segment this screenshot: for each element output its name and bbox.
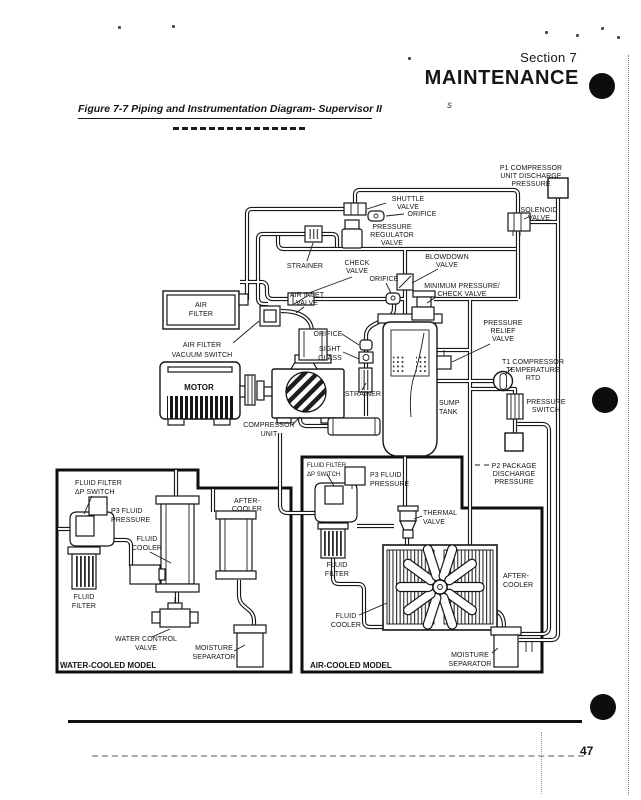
wc-moisture-separator xyxy=(234,625,266,667)
label-sight-glass: GLASS xyxy=(318,355,342,362)
label-min-pressure: MINIMUM PRESSURE/ xyxy=(424,283,500,290)
ac-label-after-cooler: COOLER xyxy=(503,582,533,589)
label-blowdown: BLOWDOWN xyxy=(425,254,469,261)
p2-sensor-symbol xyxy=(505,433,523,451)
wc-label-water-valve: WATER CONTROL xyxy=(115,636,177,643)
label-compressor-unit: UNIT xyxy=(261,431,278,438)
ac-label-fluid-cooler: FLUID xyxy=(336,613,357,620)
label-strainer-2: STRAINER xyxy=(345,391,381,398)
label-t1-rtd: T1 COMPRESSOR xyxy=(502,359,564,366)
wc-label-fluid-filter: FILTER xyxy=(72,603,96,610)
wc-label-water-valve: VALVE xyxy=(135,645,157,652)
label-orifice-2: ORIFICE xyxy=(369,276,398,283)
ac-label-moisture: SEPARATOR xyxy=(449,661,492,668)
wc-label-moisture: SEPARATOR xyxy=(193,654,236,661)
ac-label-fluid-filter: FLUID xyxy=(327,562,348,569)
label-vacuum-switch: VACUUM SWITCH xyxy=(172,352,233,359)
label-solenoid: SOLENOID xyxy=(521,207,558,214)
label-relief-valve: PRESSURE xyxy=(483,320,523,327)
wc-water-control-valve xyxy=(152,597,198,627)
wc-model-title: WATER-COOLED MODEL xyxy=(60,661,156,670)
label-relief-valve: RELIEF xyxy=(490,328,515,335)
label-sump-tank: SUMP xyxy=(439,400,460,407)
label-orifice-1: ORIFICE xyxy=(407,211,436,218)
label-motor: MOTOR xyxy=(184,383,214,392)
air-filter-box xyxy=(163,291,248,329)
pressure-relief-valve-symbol xyxy=(437,350,451,369)
label-min-pressure: CHECK VALVE xyxy=(437,291,486,298)
pressure-switch-symbol xyxy=(507,394,523,419)
ac-fluid-filter-assembly xyxy=(315,467,365,558)
ac-label-p3: PRESSURE xyxy=(370,481,410,488)
ac-label-fluid-filter: FILTER xyxy=(325,571,349,578)
footer-rule xyxy=(68,720,582,723)
label-t1-rtd: RTD xyxy=(526,375,541,382)
strainer-symbol-top xyxy=(305,226,322,242)
orifice-symbol-1 xyxy=(368,211,384,221)
vacuum-switch-symbol xyxy=(260,306,280,326)
ac-label-p3: P3 FLUID xyxy=(370,472,402,479)
component-symbols xyxy=(68,178,568,667)
oil-return-pipe xyxy=(328,418,380,435)
scan-noise-line xyxy=(92,755,584,757)
wc-label-fluid-filter: FLUID xyxy=(74,594,95,601)
sump-tank xyxy=(378,314,442,456)
label-p2: PRESSURE xyxy=(494,479,534,486)
wc-label-after-cooler: AFTER- xyxy=(234,498,260,505)
ac-label-moisture: MOISTURE xyxy=(451,652,489,659)
label-vacuum-switch: AIR FILTER xyxy=(183,342,221,349)
piping-diagram: P1 COMPRESSOR UNIT DISCHARGE PRESSURE SH… xyxy=(0,0,641,800)
wc-label-after-cooler: COOLER xyxy=(232,506,262,513)
label-air-inlet: AIR INLET xyxy=(290,292,325,299)
blowdown-valve-symbol xyxy=(397,274,413,290)
label-check-valve: VALVE xyxy=(346,268,368,275)
ac-thermal-valve xyxy=(398,506,418,538)
motor-symbol xyxy=(160,362,240,425)
ac-label-after-cooler: AFTER- xyxy=(503,573,529,580)
wc-label-moisture: MOISTURE xyxy=(195,645,233,652)
wc-label-dp-switch: FLUID FILTER xyxy=(75,480,122,487)
p1-sensor-symbol xyxy=(548,178,568,198)
label-air-filter: AIR xyxy=(195,302,207,309)
label-orifice-3: ORIFICE xyxy=(313,331,342,338)
label-air-inlet: VALVE xyxy=(296,300,318,307)
wc-label-p3: PRESSURE xyxy=(111,517,151,524)
wc-after-cooler xyxy=(216,511,256,579)
label-sight-glass: SIGHT xyxy=(319,346,342,353)
wc-label-fluid-cooler: FLUID xyxy=(137,536,158,543)
manual-page: Section 7 MAINTENANCE Figure 7-7 Piping … xyxy=(0,0,641,800)
label-check-valve: CHECK xyxy=(344,260,369,267)
ac-model-title: AIR-COOLED MODEL xyxy=(310,661,392,670)
label-blowdown: VALVE xyxy=(436,262,458,269)
coupling-symbol xyxy=(240,375,273,405)
label-strainer-top: STRAINER xyxy=(287,263,323,270)
min-pressure-check-valve-symbol xyxy=(412,291,435,320)
ac-label-dp-switch: ΔP SWITCH xyxy=(307,472,340,478)
pressure-regulator-symbol xyxy=(342,220,362,248)
label-regulator: VALVE xyxy=(381,240,403,247)
label-air-filter: FILTER xyxy=(189,311,213,318)
fan-hub xyxy=(433,580,447,594)
label-solenoid: VALVE xyxy=(528,215,550,222)
label-p2: P2 PACKAGE xyxy=(492,463,537,470)
wc-label-p3: P3 FLUID xyxy=(111,508,143,515)
orifice-symbol-2 xyxy=(386,293,400,304)
label-regulator: PRESSURE xyxy=(372,224,412,231)
ac-label-fluid-cooler: COOLER xyxy=(331,622,361,629)
label-shuttle-valve: SHUTTLE xyxy=(392,196,425,203)
t1-rtd-symbol xyxy=(494,372,513,391)
wc-label-dp-switch: ΔP SWITCH xyxy=(75,489,115,496)
ac-label-thermal: VALVE xyxy=(423,519,445,526)
ac-fan-cooler xyxy=(383,544,497,630)
ac-label-dp-switch: FLUID FILTER xyxy=(307,463,347,469)
ac-label-thermal: THERMAL xyxy=(423,510,457,517)
compressor-symbol xyxy=(272,369,344,423)
label-pressure-switch: PRESSURE xyxy=(526,399,566,406)
label-sump-tank: TANK xyxy=(439,409,458,416)
label-compressor-unit: COMPRESSOR xyxy=(243,422,295,429)
label-regulator: REGULATOR xyxy=(370,232,414,239)
label-p2: DISCHARGE xyxy=(493,471,536,478)
label-p1: UNIT DISCHARGE xyxy=(500,173,561,180)
label-p1: PRESSURE xyxy=(511,181,551,188)
label-p1: P1 COMPRESSOR xyxy=(500,165,562,172)
label-t1-rtd: TEMPERATURE xyxy=(506,367,560,374)
label-pressure-switch: SWITCH xyxy=(532,407,560,414)
label-shuttle-valve: VALVE xyxy=(397,204,419,211)
label-relief-valve: VALVE xyxy=(492,336,514,343)
wc-label-fluid-cooler: COOLER xyxy=(132,545,162,552)
wc-fluid-filter-assembly xyxy=(68,497,114,589)
shuttle-valve-symbol xyxy=(344,203,366,215)
